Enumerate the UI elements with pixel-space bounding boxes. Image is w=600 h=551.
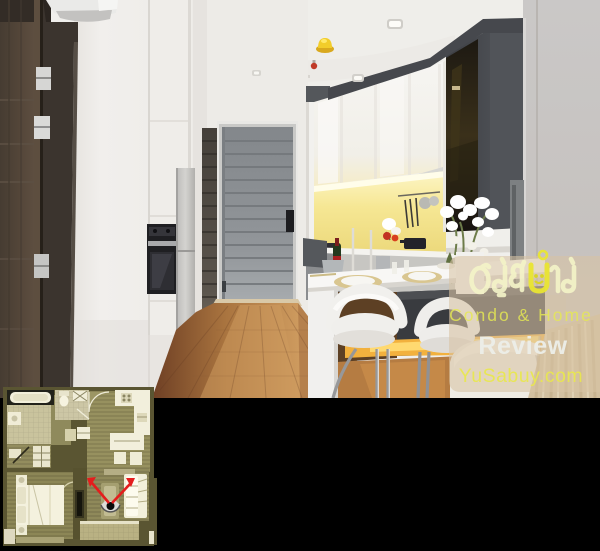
svg-text:Condo & Home: Condo & Home xyxy=(449,305,593,325)
svg-text:Review: Review xyxy=(478,332,567,360)
svg-text:YuSabuy.com: YuSabuy.com xyxy=(459,365,583,387)
